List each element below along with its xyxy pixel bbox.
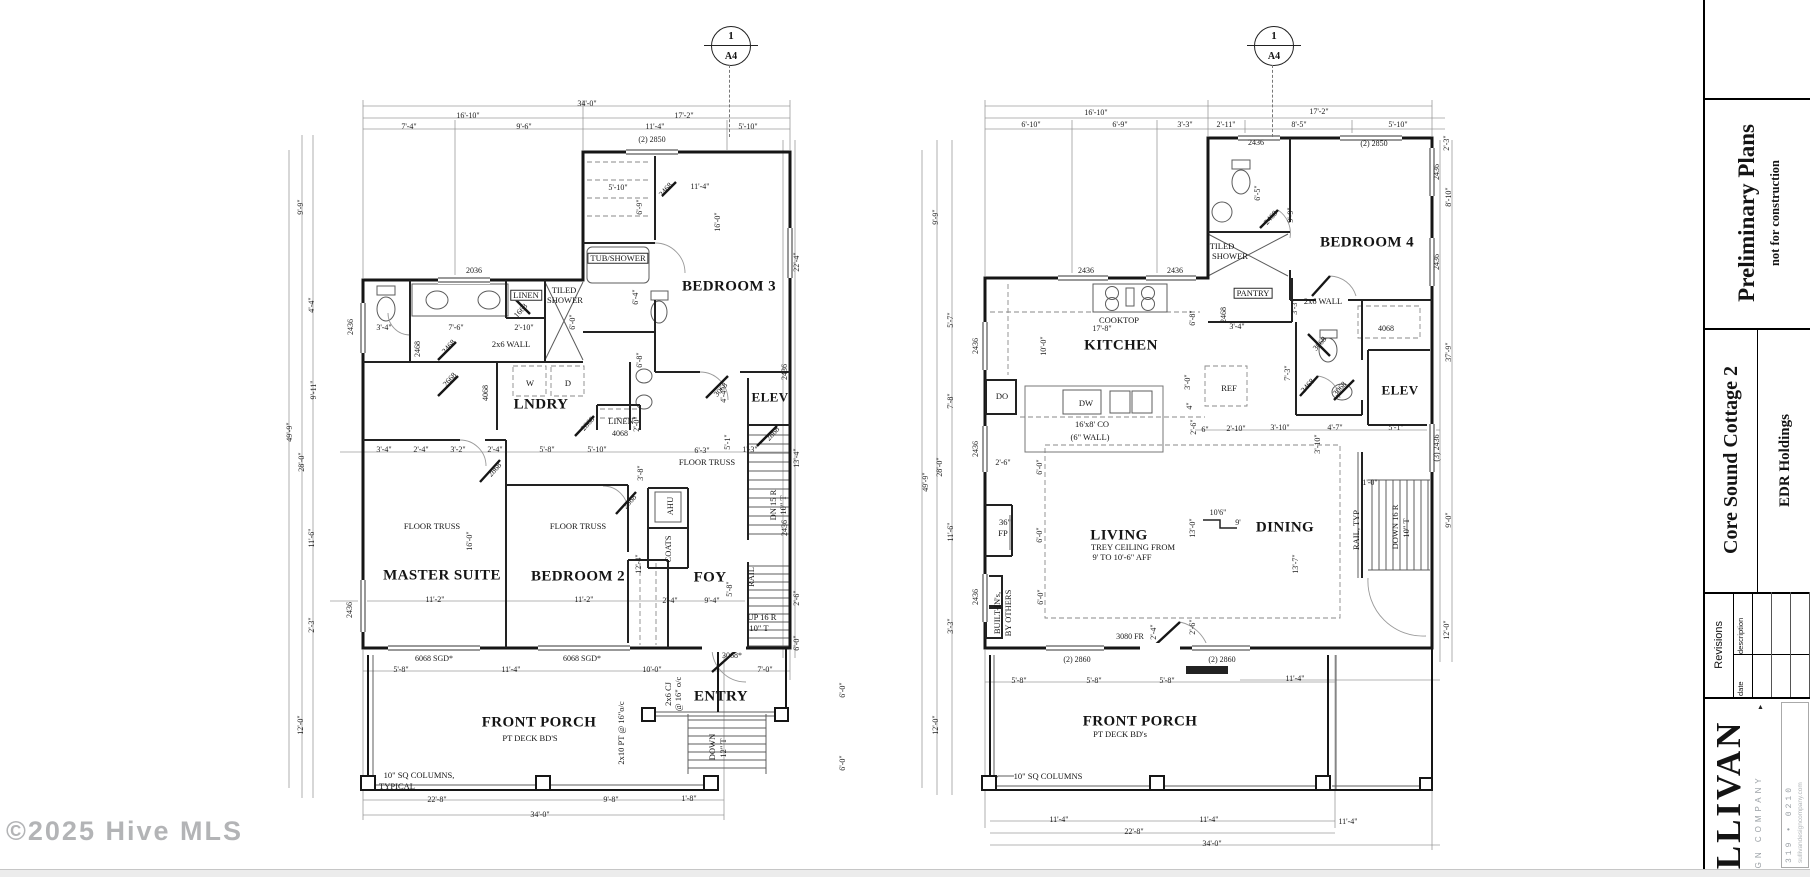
section-marker: 1A4 xyxy=(711,26,749,64)
revisions-block: Revisions description date xyxy=(1705,592,1810,697)
revisions-header-column: description date xyxy=(1734,592,1753,697)
arrow-icon: ▲ xyxy=(1757,703,1764,711)
section-marker: 1A4 xyxy=(1254,26,1292,64)
section-marker-circle: 1A4 xyxy=(711,26,751,66)
revision-description-label: description xyxy=(1736,594,1745,654)
revisions-row-divider xyxy=(1734,654,1810,655)
project-block: Core Sound Cottage 2 EDR Holdings xyxy=(1705,328,1810,592)
client-name: EDR Holdings xyxy=(1777,414,1794,507)
sheet-status-title: Preliminary Plans xyxy=(1734,124,1760,302)
revision-entry-divider xyxy=(1771,592,1772,697)
sheet-status-subtitle: not for construction xyxy=(1768,160,1783,266)
section-marker-line xyxy=(1247,45,1301,46)
firm-tagline: DESIGN COMPANY xyxy=(1754,713,1763,876)
project-name: Core Sound Cottage 2 xyxy=(1720,366,1743,554)
mls-watermark: ©2025 Hive MLS xyxy=(6,816,243,847)
title-block: Preliminary Plans not for construction C… xyxy=(1703,0,1810,876)
revision-date-label: date xyxy=(1736,656,1745,696)
section-marker-circle: 1A4 xyxy=(1254,26,1294,66)
section-marker-line xyxy=(704,45,758,46)
revisions-label: Revisions xyxy=(1713,621,1725,669)
firm-website: sullivandesigncompany.com xyxy=(1797,707,1804,863)
section-marker-number: 1 xyxy=(1255,30,1293,42)
preliminary-stamp: Preliminary Plans not for construction xyxy=(1705,98,1810,328)
firm-phone: 319 • 0210 xyxy=(1785,707,1794,863)
revision-entry-divider xyxy=(1790,592,1791,697)
firm-contact-box: 319 • 0210 sullivandesigncompany.com xyxy=(1781,702,1809,868)
firm-name: SULLIVAN xyxy=(1709,705,1749,876)
drawing-sheet: { "watermark": "©2025 Hive MLS", "marker… xyxy=(0,0,1810,876)
firm-logo-block: SULLIVAN ▲ DESIGN COMPANY 319 • 0210 sul… xyxy=(1705,697,1810,876)
section-marker-centerline xyxy=(1272,65,1273,137)
section-marker-sheet: A4 xyxy=(1255,51,1293,62)
section-marker-sheet: A4 xyxy=(712,51,750,62)
section-marker-number: 1 xyxy=(712,30,750,42)
section-marker-centerline xyxy=(729,65,730,137)
detail-markers-layer: 1A41A4 xyxy=(0,0,1810,876)
revisions-table: description date xyxy=(1733,592,1810,697)
